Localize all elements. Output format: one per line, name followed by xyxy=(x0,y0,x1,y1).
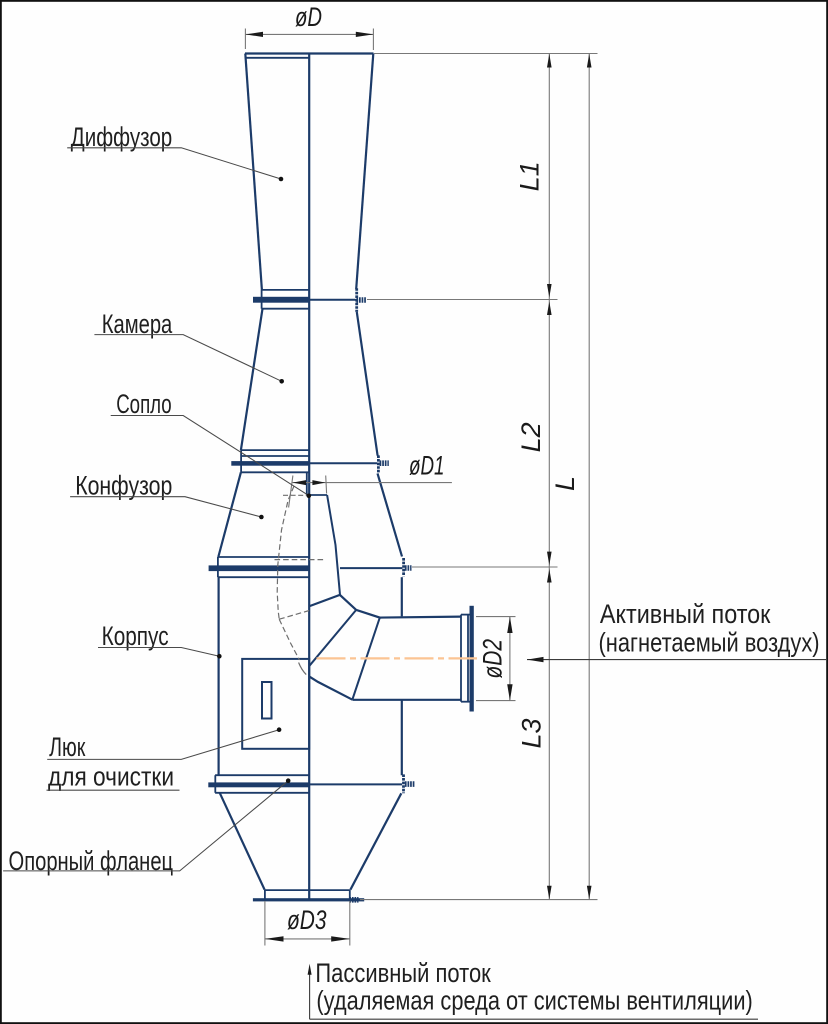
svg-text:øD1: øD1 xyxy=(409,450,445,480)
svg-text:Сопло: Сопло xyxy=(116,389,172,419)
svg-text:L1: L1 xyxy=(515,161,545,191)
svg-text:L2: L2 xyxy=(516,422,546,452)
svg-text:(удаляемая среда от системы ве: (удаляемая среда от системы вентиляции) xyxy=(316,986,752,1016)
svg-text:Конфузор: Конфузор xyxy=(75,471,172,501)
svg-text:øD: øD xyxy=(295,2,322,32)
svg-text:øD2: øD2 xyxy=(478,639,508,679)
svg-text:Опорный фланец: Опорный фланец xyxy=(9,846,174,876)
svg-text:øD3: øD3 xyxy=(287,905,327,935)
svg-text:Корпус: Корпус xyxy=(102,621,169,651)
svg-text:Пассивный поток: Пассивный поток xyxy=(315,958,491,988)
svg-text:(нагнетаемый воздух): (нагнетаемый воздух) xyxy=(599,628,820,658)
svg-text:Люк: Люк xyxy=(49,732,86,762)
svg-text:L: L xyxy=(550,476,580,491)
svg-text:для очистки: для очистки xyxy=(48,761,174,791)
svg-text:L3: L3 xyxy=(517,718,547,748)
svg-text:Активный поток: Активный поток xyxy=(600,599,771,629)
